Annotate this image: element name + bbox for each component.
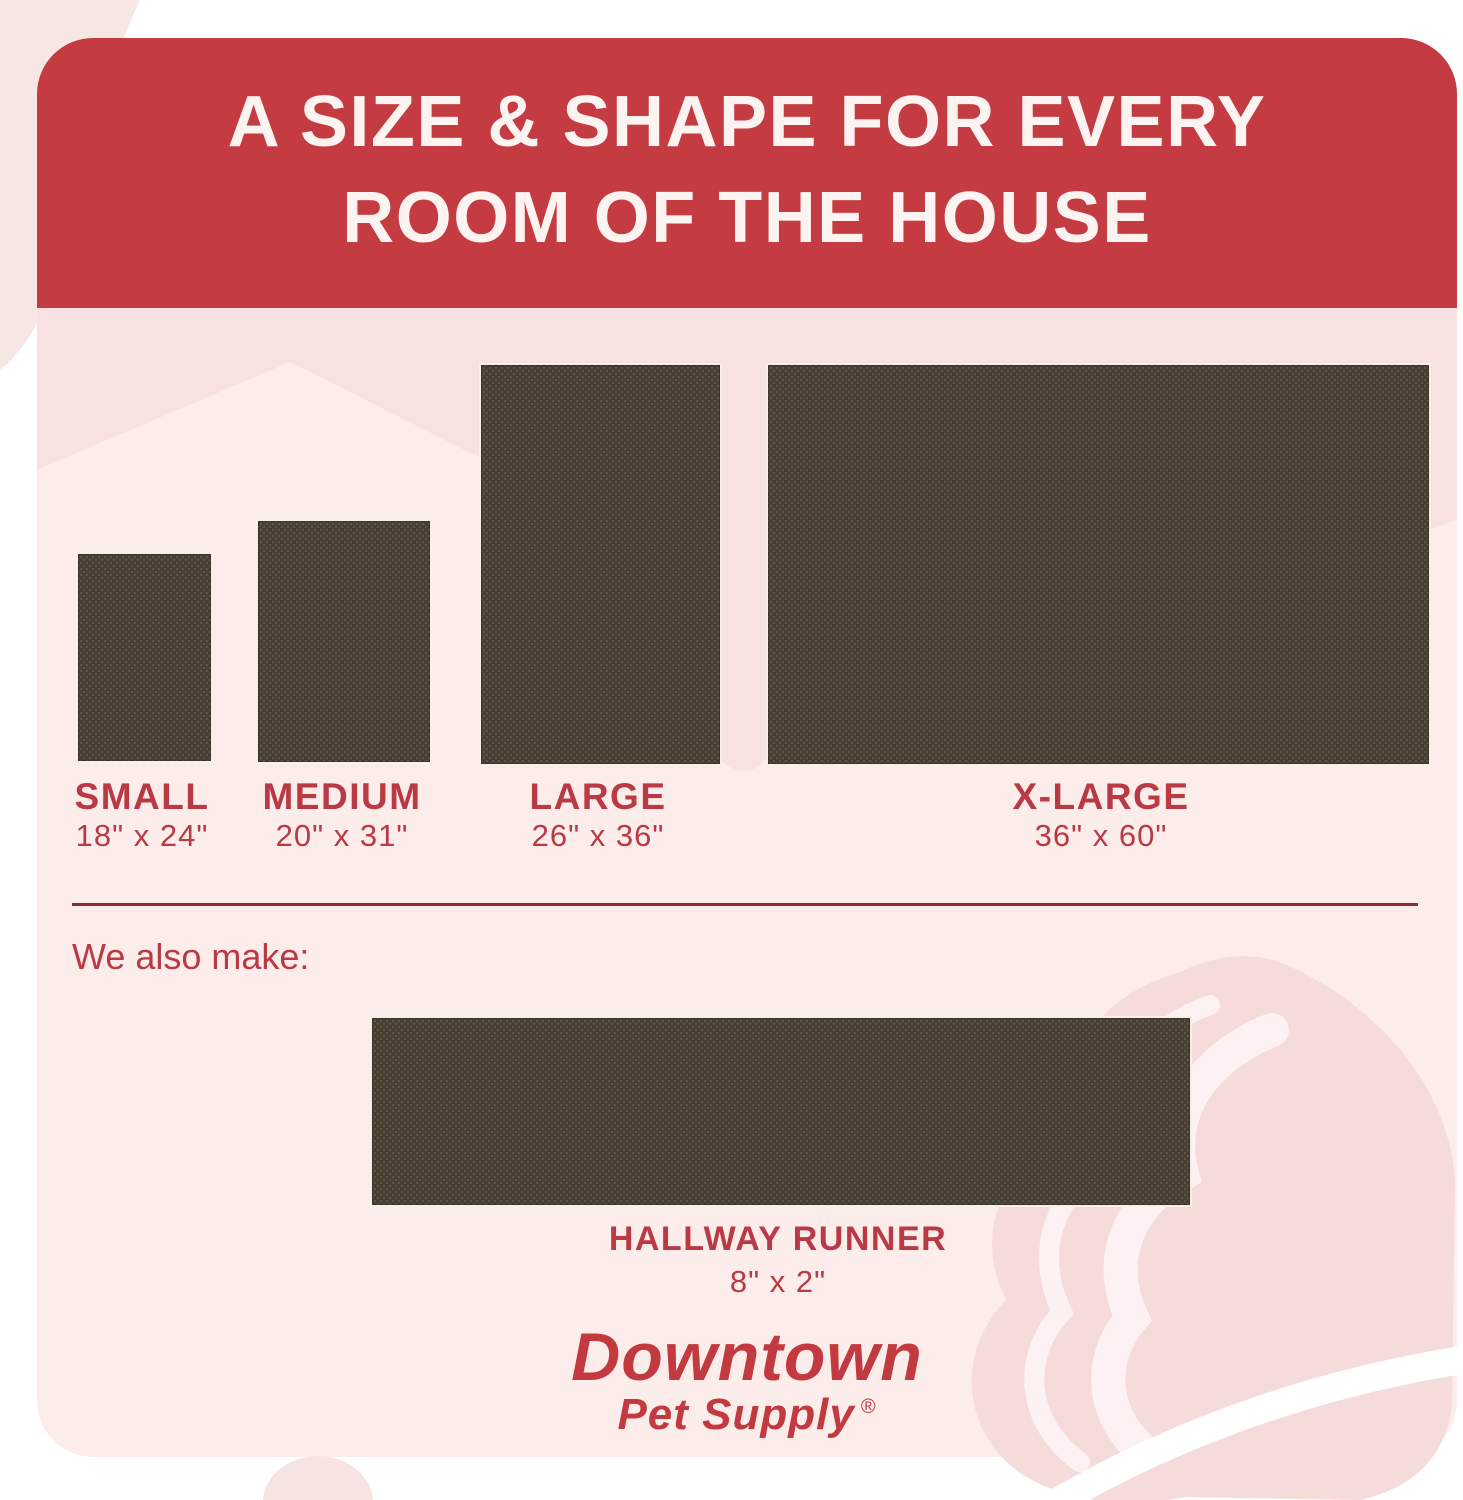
brand-logo-tagline: Pet Supply® <box>237 1390 1257 1440</box>
size-label-medium: MEDIUM <box>242 776 442 818</box>
page-title-line2: ROOM OF THE HOUSE <box>37 170 1457 266</box>
registered-trademark-symbol: ® <box>855 1396 877 1418</box>
size-dimensions-xlarge: 36" x 60" <box>951 818 1251 854</box>
rug-swatch-hallway-runner <box>370 1016 1192 1207</box>
size-label-xlarge: X-LARGE <box>951 776 1251 818</box>
size-dimensions-hallway-runner: 8" x 2" <box>603 1264 953 1300</box>
size-dimensions-small: 18" x 24" <box>42 818 242 854</box>
infographic-canvas: A SIZE & SHAPE FOR EVERY ROOM OF THE HOU… <box>0 0 1463 1500</box>
size-label-hallway-runner: HALLWAY RUNNER <box>603 1220 953 1259</box>
also-make-intro: We also make: <box>72 936 572 978</box>
rug-swatch-small <box>76 552 213 763</box>
size-label-large: LARGE <box>498 776 698 818</box>
size-label-small: SMALL <box>42 776 242 818</box>
rug-swatch-large <box>479 363 722 766</box>
rug-swatch-xlarge <box>766 363 1431 766</box>
page-title: A SIZE & SHAPE FOR EVERY ROOM OF THE HOU… <box>37 74 1457 274</box>
section-divider <box>72 903 1418 906</box>
size-dimensions-medium: 20" x 31" <box>242 818 442 854</box>
brand-tagline-text: Pet Supply <box>617 1390 854 1439</box>
size-dimensions-large: 26" x 36" <box>498 818 698 854</box>
brand-logo-name: Downtown <box>237 1318 1257 1396</box>
rug-swatch-medium <box>256 519 432 764</box>
page-title-line1: A SIZE & SHAPE FOR EVERY <box>37 74 1457 170</box>
